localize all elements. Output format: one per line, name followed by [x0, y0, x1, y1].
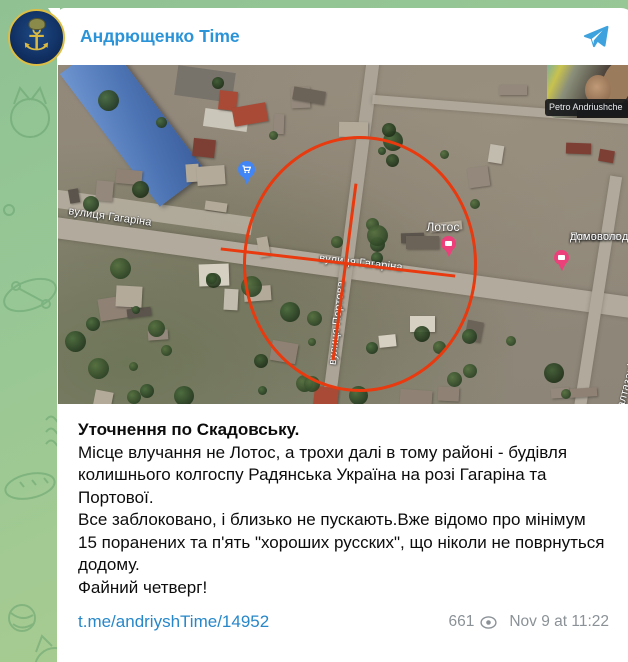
post-paragraph-2: Все заблоковано, і близько не пускають.В… — [78, 509, 605, 577]
eye-icon — [480, 616, 497, 629]
map-tree — [65, 331, 86, 352]
map-tree — [561, 389, 571, 399]
map-house — [192, 138, 216, 158]
map-house — [115, 285, 142, 307]
map-tree — [174, 386, 194, 404]
map-tree — [212, 77, 224, 89]
post-paragraph-1: Місце влучання не Лотос, а трохи далі в … — [78, 442, 605, 510]
map-tree — [148, 320, 165, 337]
post-title: Уточнення по Скадовську. — [78, 419, 605, 442]
poi-label-private-line2: домоволодіння — [570, 231, 628, 244]
map-tree — [161, 345, 172, 356]
post-footer: t.me/andriyshTime/14952 661 Nov 9 at 11:… — [78, 611, 609, 634]
map-house — [488, 144, 505, 164]
map-tree — [269, 131, 278, 140]
map-tree — [440, 150, 449, 159]
post-photo-map[interactable]: вулиця Гагаріна вулиця Гагаріна вулиця П… — [58, 65, 628, 404]
channel-name[interactable]: Андрющенко Time — [80, 26, 240, 47]
map-tree — [127, 390, 141, 404]
shopping-cart-pin-icon — [238, 161, 255, 178]
map-house — [499, 85, 527, 95]
map-tree — [132, 181, 149, 198]
map-tree — [88, 358, 109, 379]
map-tree — [463, 364, 477, 378]
map-house — [399, 389, 432, 404]
map-tree — [110, 258, 131, 279]
map-house — [196, 165, 225, 186]
map-tree — [544, 363, 564, 383]
channel-avatar[interactable]: ⚓ — [8, 9, 65, 66]
map-tree — [506, 336, 516, 346]
map-tree — [156, 117, 167, 128]
map-tree — [382, 123, 396, 137]
map-tree — [129, 362, 138, 371]
map-tree — [254, 354, 268, 368]
telegram-chat-screen: ⚓ Андрющенко Time вулиця Гагаріна вулиця… — [0, 0, 628, 662]
post-text: Уточнення по Скадовську. Місце влучання … — [57, 404, 628, 634]
map-house — [339, 122, 368, 138]
map-tree — [470, 199, 480, 209]
map-house — [95, 180, 114, 201]
hotel-pin-private-icon — [554, 250, 569, 265]
map-house — [92, 389, 113, 404]
map-house — [223, 289, 238, 311]
forward-plane-icon[interactable] — [582, 23, 609, 50]
avatar-helmet-shape — [28, 18, 45, 30]
map-house — [68, 188, 80, 204]
message-header: Андрющенко Time — [57, 8, 628, 65]
map-tree — [462, 329, 477, 344]
map-tree — [86, 317, 100, 331]
contributor-tooltip: Petro Andriushche — [545, 99, 628, 116]
post-link[interactable]: t.me/andriyshTime/14952 — [78, 611, 269, 634]
map-tree — [447, 372, 462, 387]
map-house — [570, 387, 598, 398]
timestamp: Nov 9 at 11:22 — [509, 611, 609, 634]
view-count: 661 — [448, 611, 474, 634]
post-meta: 661 Nov 9 at 11:22 — [448, 611, 609, 634]
map-house — [467, 166, 491, 189]
map-tree — [140, 384, 154, 398]
map-house — [438, 386, 460, 401]
map-tree — [206, 273, 221, 288]
map-tree — [132, 306, 140, 314]
map-house — [232, 102, 269, 127]
map-tree — [258, 386, 267, 395]
map-house — [566, 143, 591, 155]
map-tree — [98, 90, 119, 111]
message-bubble: Андрющенко Time вулиця Гагаріна вулиця Г… — [57, 8, 628, 662]
map-house — [598, 149, 615, 163]
post-paragraph-3: Файний четверг! — [78, 577, 605, 600]
